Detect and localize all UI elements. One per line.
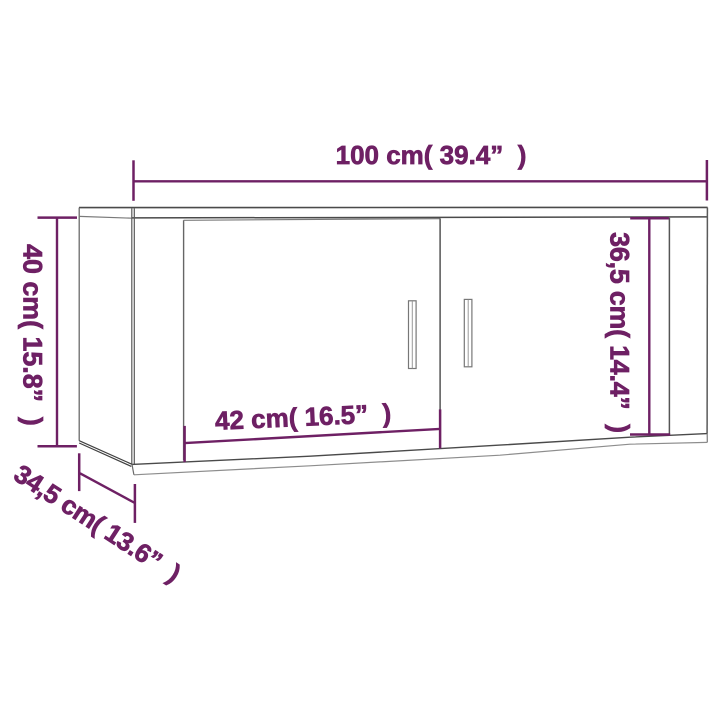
svg-text:100 cm( 39.4” ): 100 cm( 39.4” ) (336, 140, 527, 170)
svg-text:36,5 cm( 14.4” ): 36,5 cm( 14.4” ) (605, 232, 635, 433)
svg-text:40 cm( 15.8” ): 40 cm( 15.8” ) (18, 244, 48, 426)
